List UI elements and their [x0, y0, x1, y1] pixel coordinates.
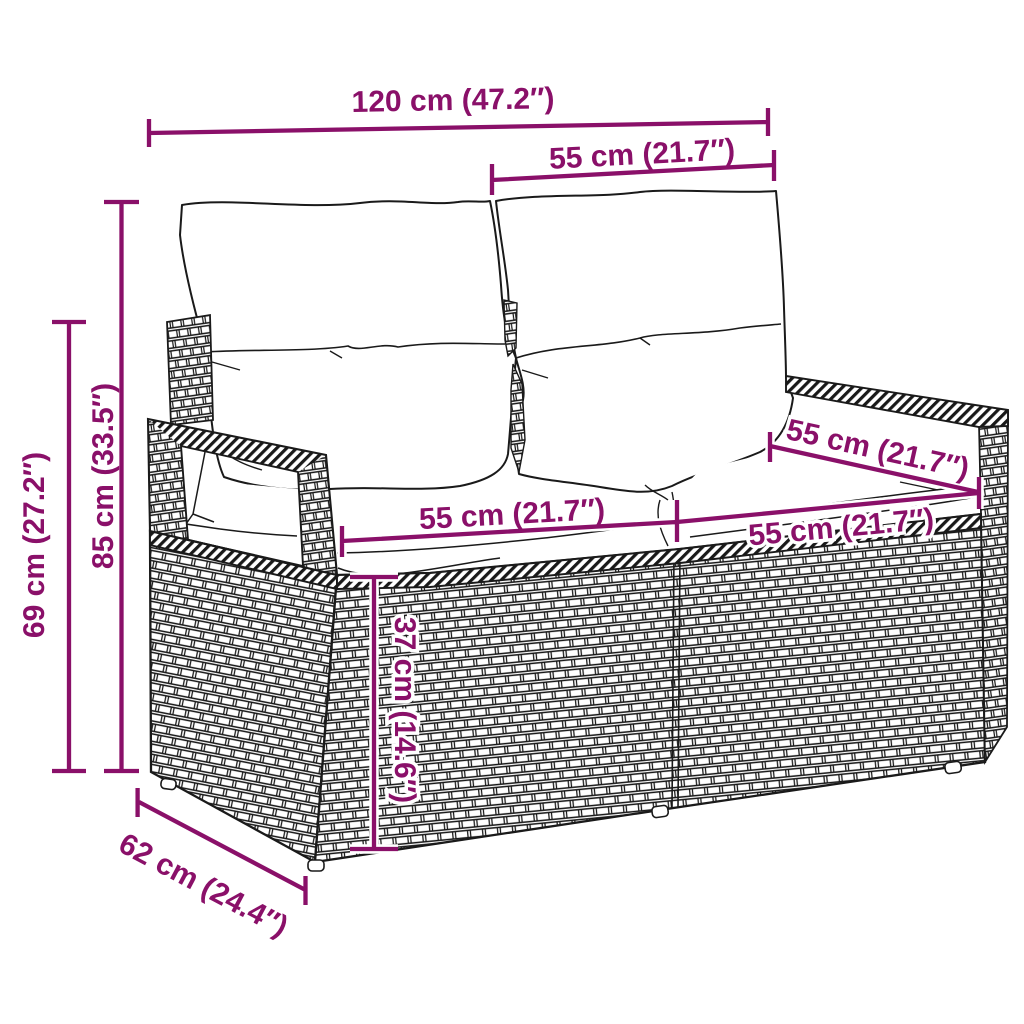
svg-text:37 cm (14.6″): 37 cm (14.6″) — [388, 617, 421, 803]
svg-text:85 cm (33.5″): 85 cm (33.5″) — [87, 383, 120, 569]
svg-text:120 cm (47.2″): 120 cm (47.2″) — [351, 82, 554, 119]
svg-text:69 cm (27.2″): 69 cm (27.2″) — [18, 452, 51, 638]
